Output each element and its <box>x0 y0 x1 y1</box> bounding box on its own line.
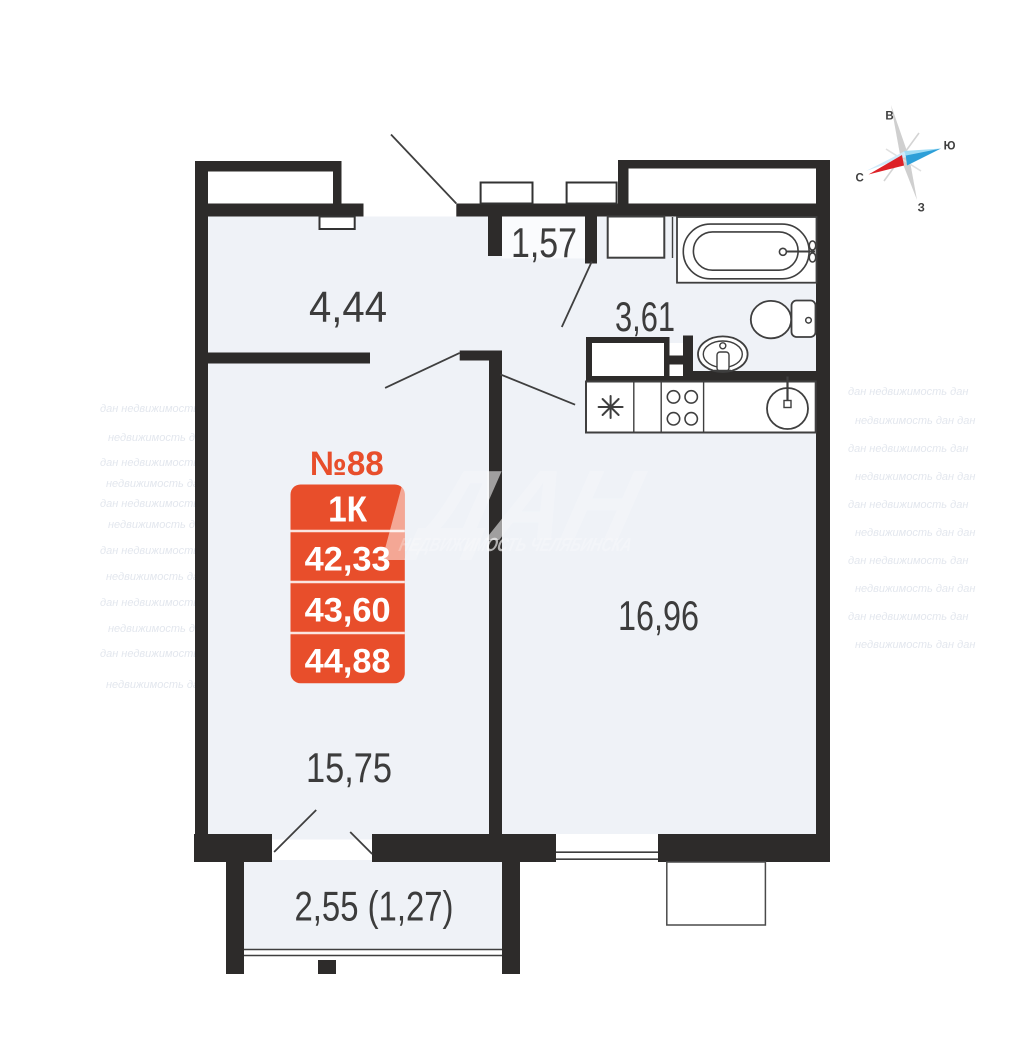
svg-text:дан недвижимость: дан недвижимость <box>100 498 199 510</box>
svg-text:недвижимость дан дан: недвижимость дан дан <box>855 415 975 427</box>
svg-text:44,88: 44,88 <box>305 643 391 681</box>
svg-text:43,60: 43,60 <box>305 592 391 630</box>
svg-text:недвижимость дан дан: недвижимость дан дан <box>855 639 975 651</box>
svg-text:З: З <box>918 203 925 215</box>
svg-text:№88: №88 <box>310 445 384 483</box>
svg-text:дан недвижимость дан: дан недвижимость дан <box>848 555 968 567</box>
svg-text:16,96: 16,96 <box>618 592 699 639</box>
svg-text:3,61: 3,61 <box>615 293 675 340</box>
svg-text:недвижимость дан: недвижимость дан <box>108 432 207 444</box>
svg-text:42,33: 42,33 <box>305 541 391 579</box>
svg-text:дан недвижимость дан: дан недвижимость дан <box>848 443 968 455</box>
svg-text:недвижимость дан дан: недвижимость дан дан <box>855 583 975 595</box>
svg-text:дан недвижимость дан: дан недвижимость дан <box>848 499 968 511</box>
svg-text:недвижимость дан: недвижимость дан <box>108 623 207 635</box>
svg-text:недвижимость дан: недвижимость дан <box>106 679 205 691</box>
svg-text:дан недвижимость дан: дан недвижимость дан <box>848 386 968 398</box>
svg-text:1,57: 1,57 <box>511 219 577 266</box>
svg-text:1К: 1К <box>328 489 368 530</box>
svg-text:2,55 (1,27): 2,55 (1,27) <box>295 883 454 930</box>
svg-text:4,44: 4,44 <box>309 283 387 332</box>
svg-text:дан недвижимость: дан недвижимость <box>100 545 199 557</box>
svg-text:недвижимость дан: недвижимость дан <box>108 519 207 531</box>
svg-text:В: В <box>885 111 893 123</box>
svg-text:недвижимость дан дан: недвижимость дан дан <box>855 527 975 539</box>
svg-text:дан недвижимость: дан недвижимость <box>100 403 199 415</box>
svg-text:15,75: 15,75 <box>306 744 392 791</box>
svg-text:дан недвижимость: дан недвижимость <box>100 597 199 609</box>
svg-text:С: С <box>856 173 864 185</box>
svg-text:Ю: Ю <box>944 141 956 153</box>
svg-text:недвижимость дан: недвижимость дан <box>106 571 205 583</box>
svg-text:недвижимость дан дан: недвижимость дан дан <box>855 471 975 483</box>
svg-text:НЕДВИЖИМОСТЬ ЧЕЛЯБИНСКА: НЕДВИЖИМОСТЬ ЧЕЛЯБИНСКА <box>397 535 634 556</box>
svg-text:недвижимость дан: недвижимость дан <box>106 478 205 490</box>
svg-text:дан недвижимость: дан недвижимость <box>100 457 199 469</box>
svg-text:дан недвижимость дан: дан недвижимость дан <box>848 611 968 623</box>
svg-text:дан недвижимость: дан недвижимость <box>100 648 199 660</box>
